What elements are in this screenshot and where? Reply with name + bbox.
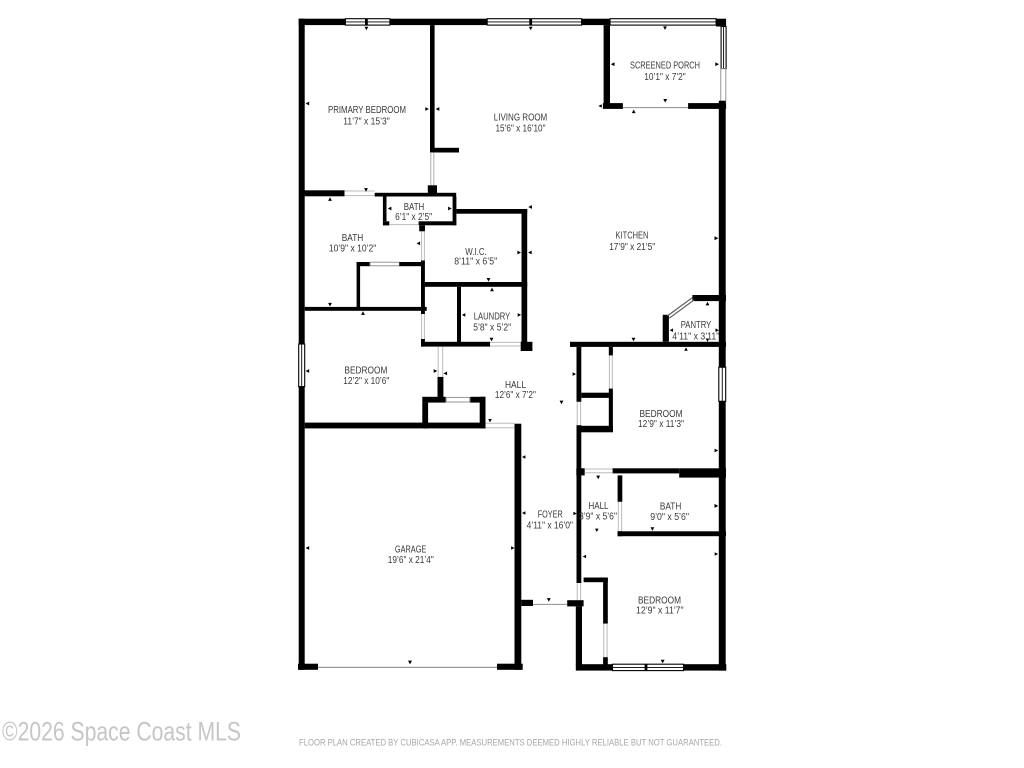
svg-text:12’9" x 11’3": 12’9" x 11’3" [638, 419, 684, 430]
svg-text:9’0" x 5’6": 9’0" x 5’6" [650, 512, 689, 523]
svg-text:19’6" x 21’4": 19’6" x 21’4" [388, 555, 434, 566]
svg-text:4’11" x 3’11": 4’11" x 3’11" [672, 332, 719, 343]
svg-text:10’9" x 10’2": 10’9" x 10’2" [329, 243, 377, 254]
svg-text:©2026 Space Coast MLS: ©2026 Space Coast MLS [2, 717, 241, 747]
svg-text:12’9" x 11’7": 12’9" x 11’7" [636, 606, 684, 617]
svg-text:15’6" x 16’10": 15’6" x 16’10" [496, 124, 546, 135]
svg-text:LIVING ROOM: LIVING ROOM [494, 113, 548, 124]
svg-text:PANTRY: PANTRY [681, 320, 712, 331]
svg-text:LAUNDRY: LAUNDRY [474, 311, 511, 322]
svg-text:FLOOR PLAN CREATED BY CUBICASA: FLOOR PLAN CREATED BY CUBICASA APP. MEAS… [299, 738, 722, 749]
svg-text:3’9" x 5’6": 3’9" x 5’6" [579, 512, 617, 523]
svg-text:12’2" x 10’6": 12’2" x 10’6" [343, 376, 389, 387]
svg-text:FOYER: FOYER [538, 510, 563, 521]
svg-text:11’7" x 15’3": 11’7" x 15’3" [343, 117, 390, 128]
svg-text:6’1" x 2’5": 6’1" x 2’5" [395, 212, 432, 223]
svg-text:17’9" x 21’5": 17’9" x 21’5" [609, 242, 655, 253]
svg-text:5’8" x 5’2": 5’8" x 5’2" [473, 323, 511, 334]
svg-text:4’11" x 16’0": 4’11" x 16’0" [527, 520, 574, 531]
svg-text:BATH: BATH [660, 501, 682, 512]
svg-text:KITCHEN: KITCHEN [616, 230, 649, 241]
svg-text:GARAGE: GARAGE [395, 545, 427, 556]
svg-text:HALL: HALL [589, 501, 609, 512]
svg-text:PRIMARY BEDROOM: PRIMARY BEDROOM [328, 105, 406, 116]
svg-text:SCREENED PORCH: SCREENED PORCH [630, 60, 700, 71]
svg-text:10’1" x 7’2": 10’1" x 7’2" [644, 72, 686, 83]
svg-text:12’6" x 7’2": 12’6" x 7’2" [495, 390, 536, 401]
svg-text:8’11" x 6’5": 8’11" x 6’5" [454, 256, 497, 267]
